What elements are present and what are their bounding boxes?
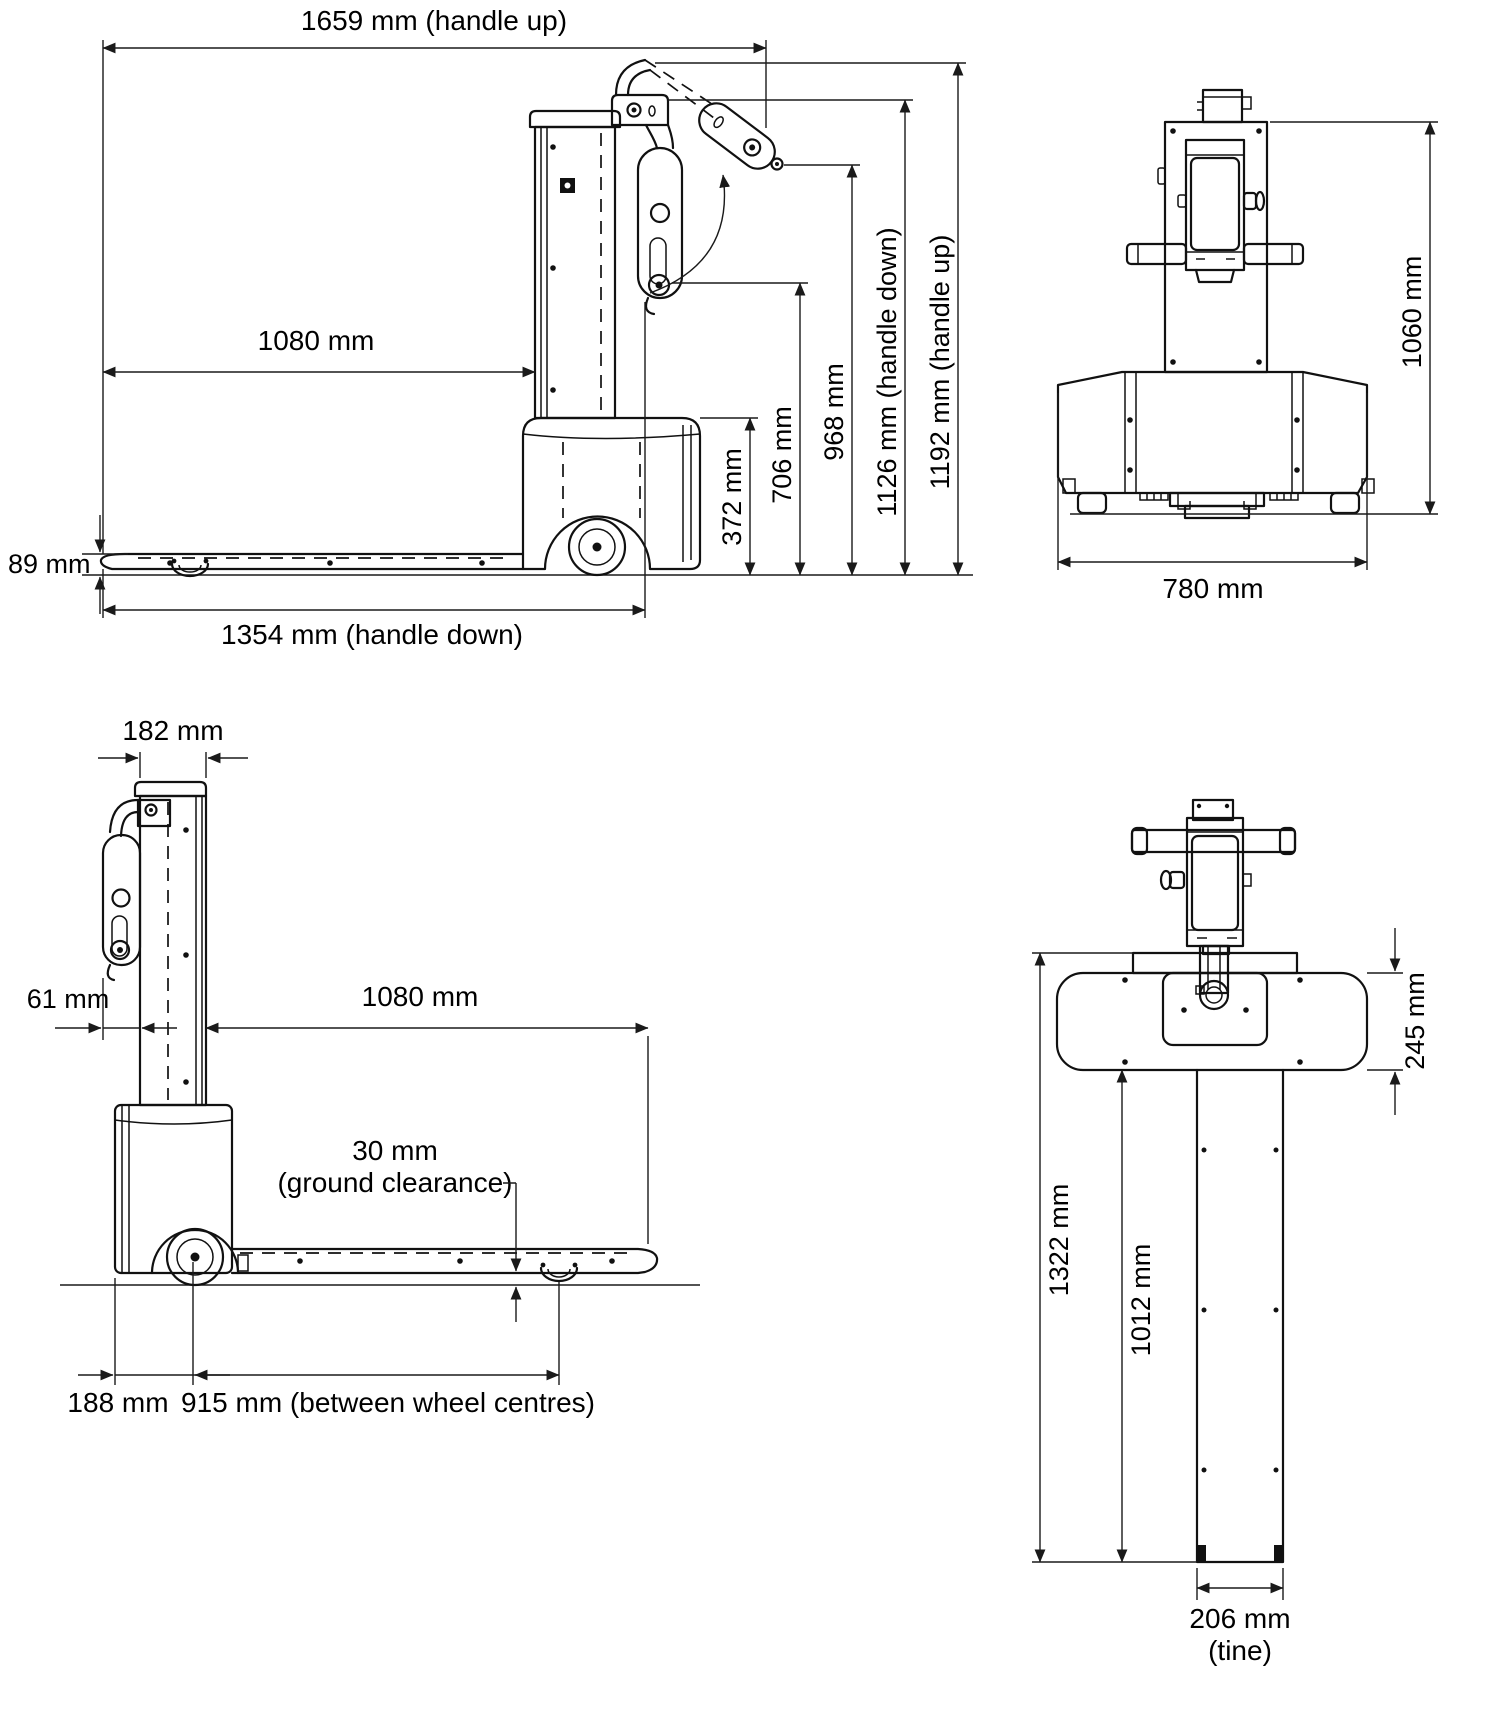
dimension-drawing-svg: 1659 mm (handle up) 1080 mm 89 mm 1354 m… [0, 0, 1500, 1725]
front-view-base [1058, 372, 1374, 518]
side-view-mast [530, 111, 620, 418]
top-view-body [1057, 946, 1367, 1070]
front-view-dimensions: 1060 mm 780 mm [1058, 122, 1438, 604]
side-view-tine [101, 554, 523, 576]
dim-label-wheelbase: 915 mm (between wheel centres) [181, 1387, 595, 1418]
top-view-tine [1197, 1070, 1283, 1562]
dim-label-handle-up-length: 1659 mm (handle up) [301, 5, 567, 36]
dim-label-body-depth: 245 mm [1400, 972, 1430, 1070]
side-view-chassis [523, 418, 700, 575]
front-view-drawing: 1060 mm 780 mm [1058, 90, 1438, 604]
dim-label-handle-overhang: 61 mm [27, 984, 110, 1014]
technical-drawing-page: 1659 mm (handle up) 1080 mm 89 mm 1354 m… [0, 0, 1500, 1725]
side-view-drawing: 1659 mm (handle up) 1080 mm 89 mm 1354 m… [8, 5, 973, 650]
dim-label-fork-length-top: 1012 mm [1126, 1244, 1156, 1357]
rear-view-chassis [115, 1105, 248, 1285]
rear-view-handle [103, 800, 170, 980]
dim-label-mast-depth: 182 mm [122, 715, 223, 746]
rear-view-mast [135, 782, 206, 1105]
dim-label-overall-width: 780 mm [1162, 573, 1263, 604]
dim-label-fork-height: 89 mm [8, 549, 91, 579]
dim-label-fork-length-rear: 1080 mm [362, 981, 479, 1012]
dim-label-height-handle-up: 1192 mm (handle up) [925, 235, 955, 490]
dim-label-tine-width-note: (tine) [1208, 1635, 1272, 1666]
dim-label-ground-clearance-note: (ground clearance) [277, 1167, 512, 1198]
dim-label-handle-down-length: 1354 mm (handle down) [221, 619, 523, 650]
front-view-tablet [1178, 140, 1264, 282]
dim-label-height-handle-down: 1126 mm (handle down) [872, 227, 902, 516]
dim-label-chassis-height: 372 mm [717, 448, 747, 546]
top-view-dimensions: 245 mm 1322 mm 1012 mm 206 mm (tine) [1032, 928, 1430, 1666]
top-view-tablet [1161, 800, 1251, 954]
dim-label-pivot-height: 968 mm [819, 363, 849, 461]
dim-label-fork-length-side: 1080 mm [258, 325, 375, 356]
front-view-mast [1158, 90, 1267, 372]
dim-label-overall-length: 1322 mm [1044, 1184, 1074, 1297]
dim-label-rear-overhang: 188 mm [67, 1387, 168, 1418]
dim-label-overall-height: 1060 mm [1397, 256, 1427, 369]
dim-label-ground-clearance-value: 30 mm [352, 1135, 438, 1166]
rear-side-view-drawing: 182 mm 61 mm 1080 mm 30 mm (ground clear… [27, 715, 700, 1418]
top-view-drawing: 245 mm 1322 mm 1012 mm 206 mm (tine) [1032, 800, 1430, 1666]
front-view-handlebar [1127, 244, 1303, 264]
rear-view-tine [232, 1249, 657, 1281]
rear-side-view-dimensions: 182 mm 61 mm 1080 mm 30 mm (ground clear… [27, 715, 648, 1418]
side-view-handle-down [638, 125, 682, 314]
dim-label-grip-height: 706 mm [767, 406, 797, 504]
dim-label-tine-width-value: 206 mm [1189, 1603, 1290, 1634]
